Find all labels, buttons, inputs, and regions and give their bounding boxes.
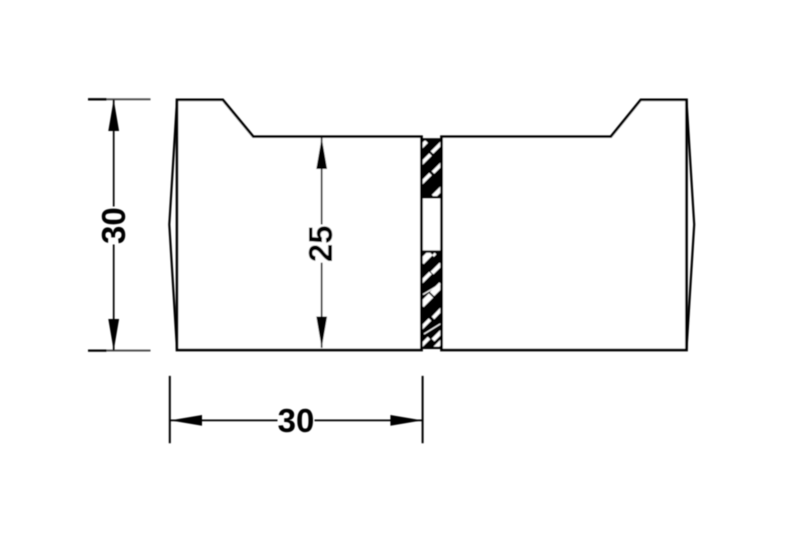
svg-text:25: 25 <box>302 225 339 262</box>
svg-text:30: 30 <box>95 207 132 244</box>
svg-text:30: 30 <box>278 402 315 439</box>
